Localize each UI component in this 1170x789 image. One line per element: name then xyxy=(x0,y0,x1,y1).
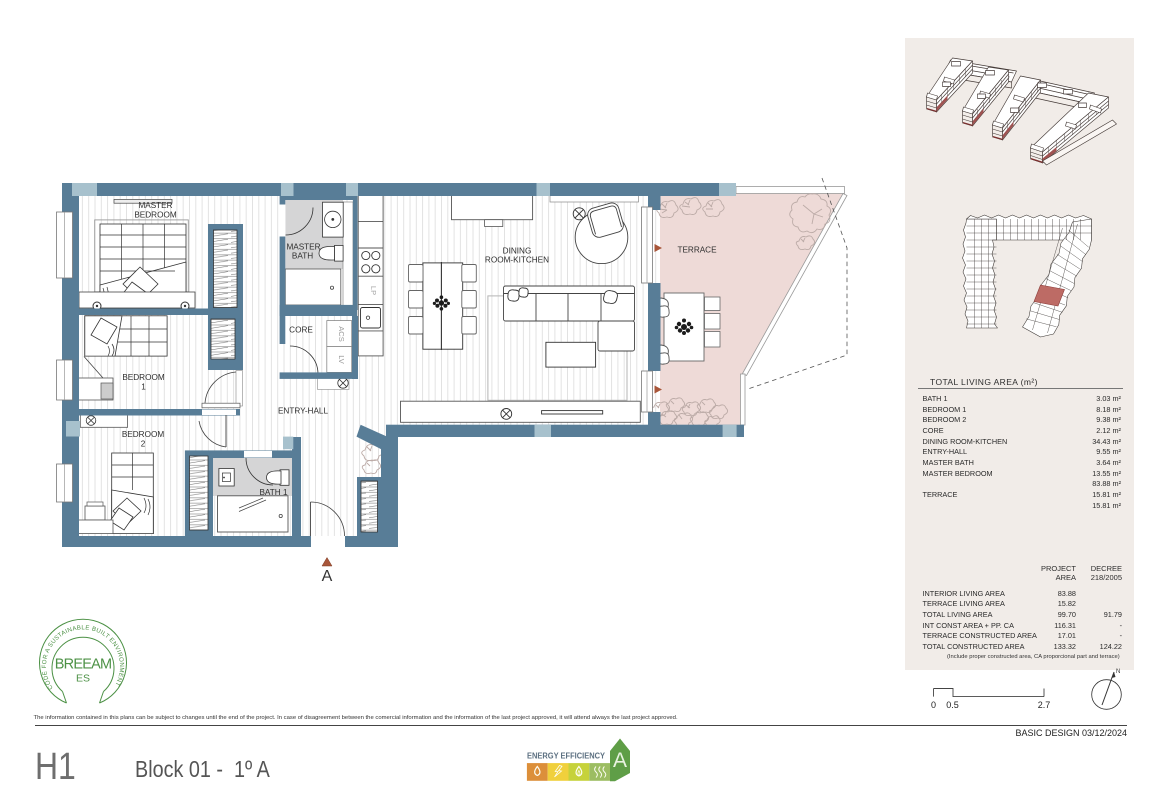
svg-text:DINING: DINING xyxy=(503,247,532,256)
svg-text:TERRACE: TERRACE xyxy=(677,246,717,255)
svg-text:CORE: CORE xyxy=(289,326,313,335)
svg-text:0.5: 0.5 xyxy=(946,700,959,710)
svg-text:1: 1 xyxy=(141,383,146,392)
svg-text:N: N xyxy=(1116,669,1120,675)
svg-text:BEDROOM: BEDROOM xyxy=(134,211,176,220)
svg-text:ROOM-KITCHEN: ROOM-KITCHEN xyxy=(485,256,549,265)
svg-text:ACS: ACS xyxy=(337,326,346,341)
svg-text:MASTER: MASTER xyxy=(138,201,172,210)
svg-text:2.7: 2.7 xyxy=(1038,700,1051,710)
svg-text:MASTER: MASTER xyxy=(286,243,320,252)
svg-text:ENERGY EFFICIENCY: ENERGY EFFICIENCY xyxy=(527,752,605,761)
svg-text:0: 0 xyxy=(931,700,936,710)
svg-text:BEDROOM: BEDROOM xyxy=(122,430,164,439)
svg-text:A: A xyxy=(322,568,333,585)
svg-text:LV: LV xyxy=(337,355,346,364)
svg-text:LP: LP xyxy=(369,286,378,295)
svg-text:BATH: BATH xyxy=(292,252,313,261)
svg-text:BEDROOM: BEDROOM xyxy=(122,373,164,382)
svg-text:2: 2 xyxy=(141,440,146,449)
svg-text:BATH 1: BATH 1 xyxy=(259,488,288,497)
svg-text:A: A xyxy=(613,749,627,772)
svg-text:BREEAM: BREEAM xyxy=(55,657,111,673)
svg-text:ENTRY-HALL: ENTRY-HALL xyxy=(278,407,329,416)
svg-text:ES: ES xyxy=(76,673,90,685)
